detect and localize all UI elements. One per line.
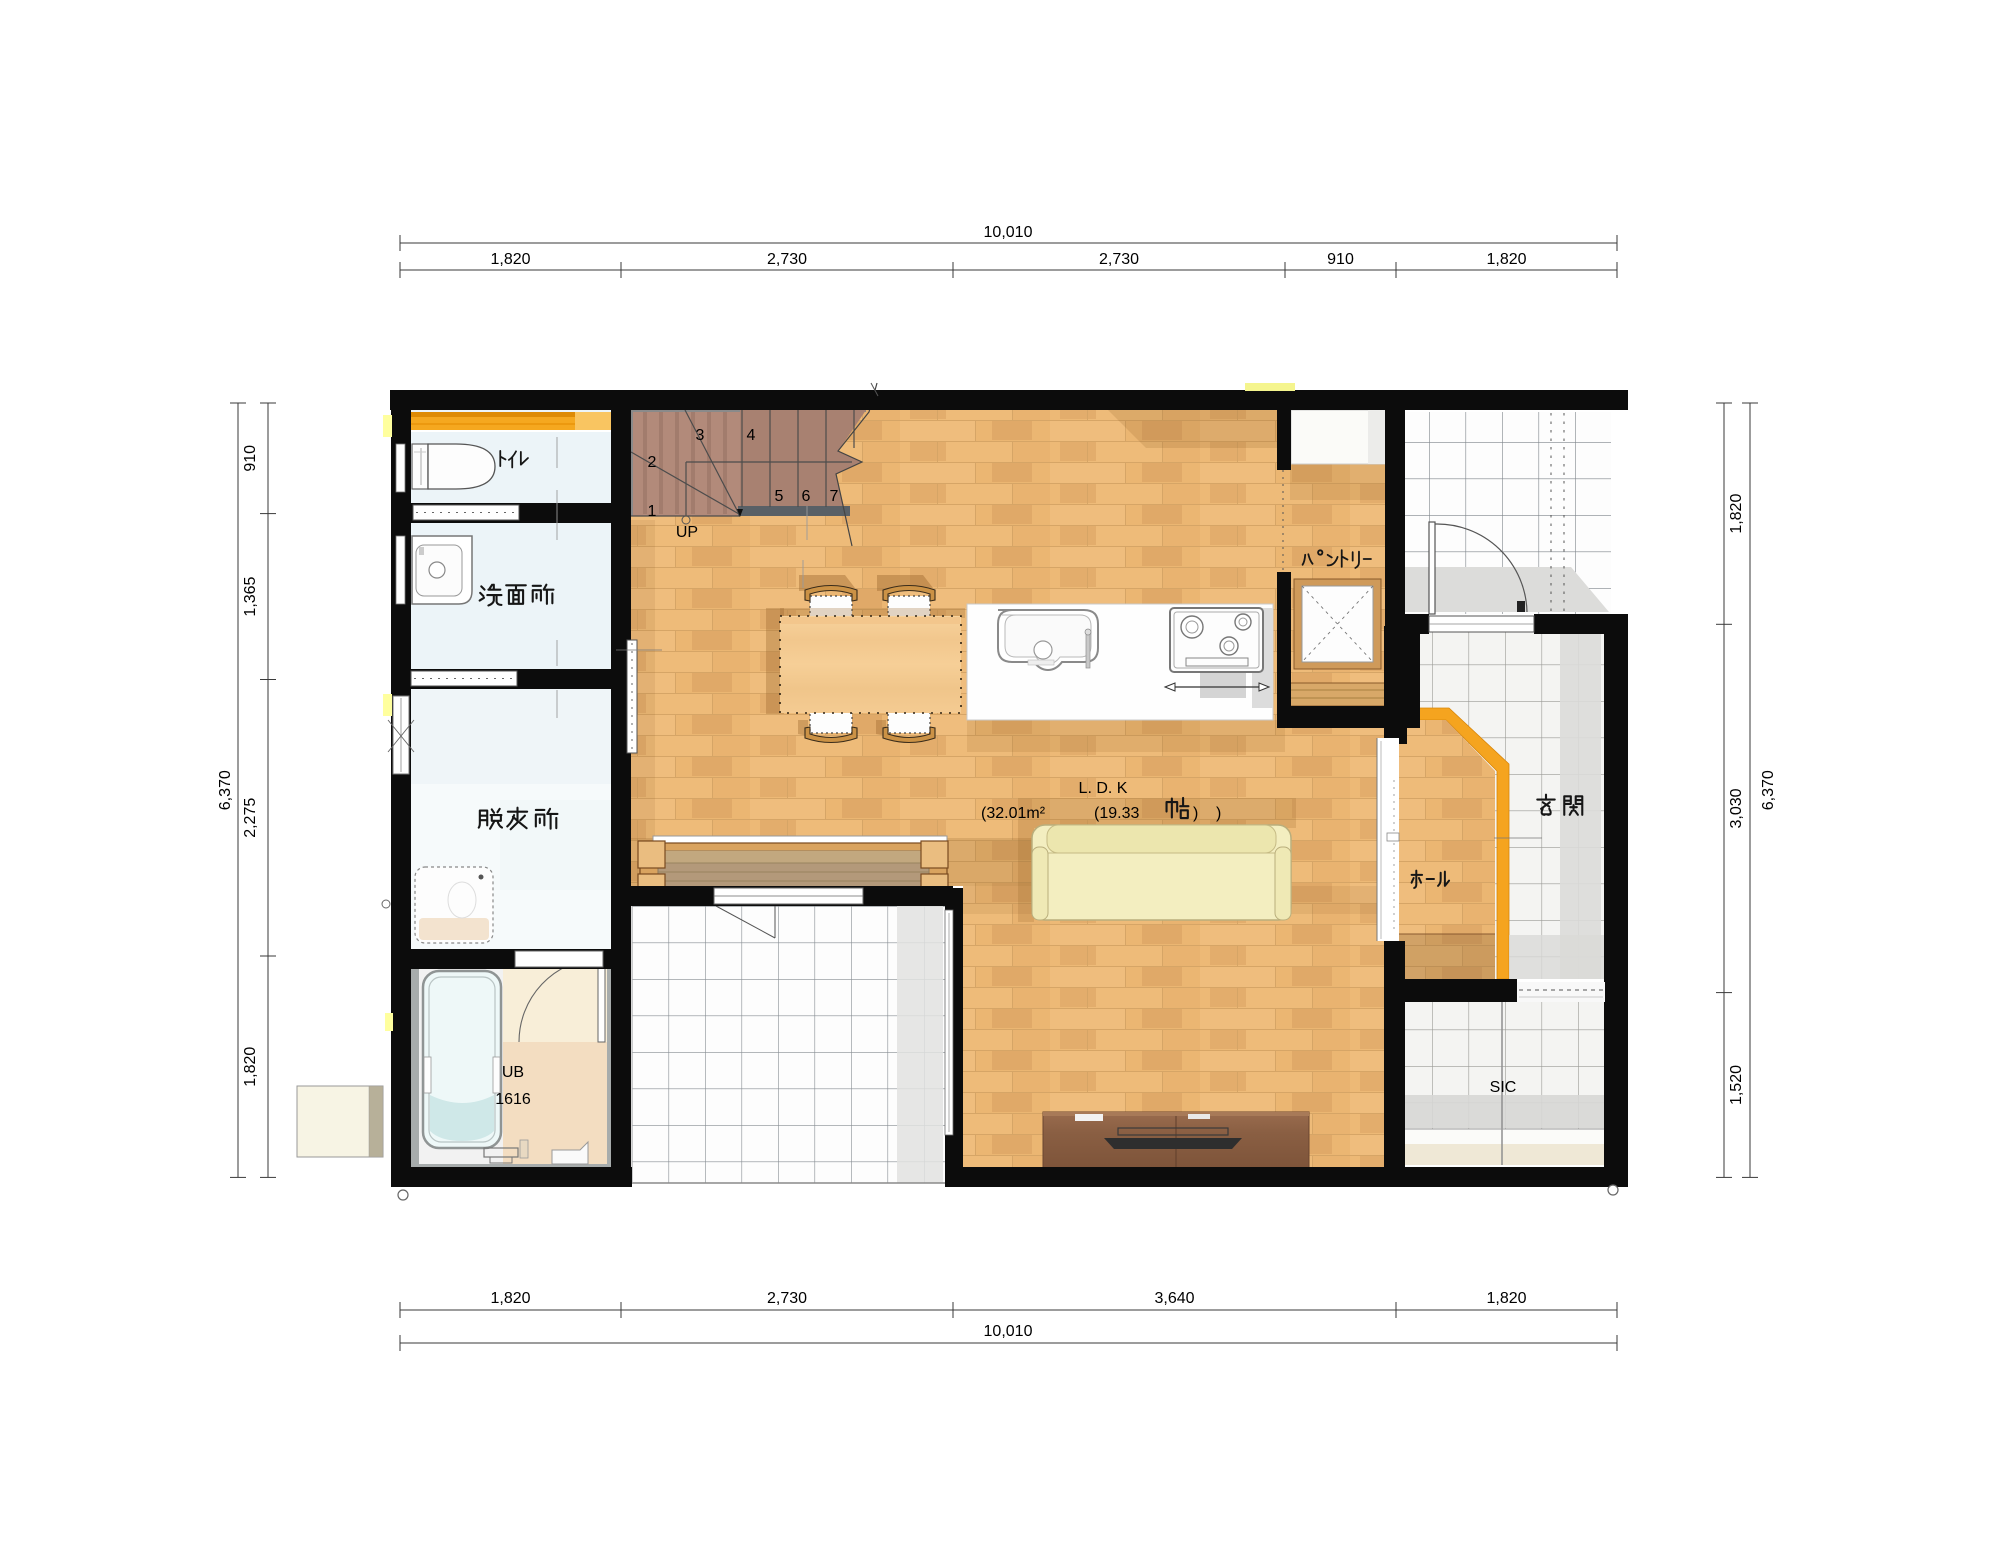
svg-text:1,820: 1,820 bbox=[490, 251, 530, 268]
svg-text:1,820: 1,820 bbox=[1486, 1290, 1526, 1307]
svg-text:1616: 1616 bbox=[495, 1091, 531, 1108]
svg-text:1,820: 1,820 bbox=[242, 1047, 259, 1087]
svg-text:910: 910 bbox=[242, 445, 259, 472]
svg-text:5: 5 bbox=[775, 488, 784, 505]
svg-text:2,730: 2,730 bbox=[767, 1290, 807, 1307]
svg-text:1,820: 1,820 bbox=[1728, 494, 1745, 534]
svg-text:(19.33: (19.33 bbox=[1094, 805, 1139, 822]
svg-text:6,370: 6,370 bbox=[217, 770, 234, 810]
svg-text:1,365: 1,365 bbox=[242, 576, 259, 616]
svg-text:1,820: 1,820 bbox=[1486, 251, 1526, 268]
svg-text:910: 910 bbox=[1327, 251, 1354, 268]
svg-text:6: 6 bbox=[802, 488, 811, 505]
svg-text:4: 4 bbox=[747, 427, 756, 444]
svg-text:(32.01m²: (32.01m² bbox=[981, 805, 1046, 822]
svg-text:10,010: 10,010 bbox=[984, 224, 1033, 241]
svg-text:2,275: 2,275 bbox=[242, 798, 259, 838]
svg-text:UB: UB bbox=[502, 1064, 524, 1081]
svg-text:7: 7 bbox=[830, 488, 839, 505]
svg-text:): ) bbox=[1216, 805, 1221, 822]
svg-text:6,370: 6,370 bbox=[1760, 770, 1777, 810]
svg-text:): ) bbox=[1193, 805, 1198, 822]
svg-text:1,820: 1,820 bbox=[490, 1290, 530, 1307]
svg-text:3,640: 3,640 bbox=[1154, 1290, 1194, 1307]
svg-text:10,010: 10,010 bbox=[984, 1323, 1033, 1340]
svg-text:3,030: 3,030 bbox=[1728, 788, 1745, 828]
svg-text:2,730: 2,730 bbox=[767, 251, 807, 268]
svg-text:2: 2 bbox=[648, 454, 657, 471]
svg-text:1: 1 bbox=[648, 503, 657, 520]
svg-text:UP: UP bbox=[676, 524, 698, 541]
svg-text:L. D. K: L. D. K bbox=[1079, 780, 1128, 797]
svg-text:3: 3 bbox=[696, 427, 705, 444]
svg-text:2,730: 2,730 bbox=[1099, 251, 1139, 268]
svg-text:SIC: SIC bbox=[1490, 1079, 1517, 1096]
svg-text:1,520: 1,520 bbox=[1728, 1065, 1745, 1105]
